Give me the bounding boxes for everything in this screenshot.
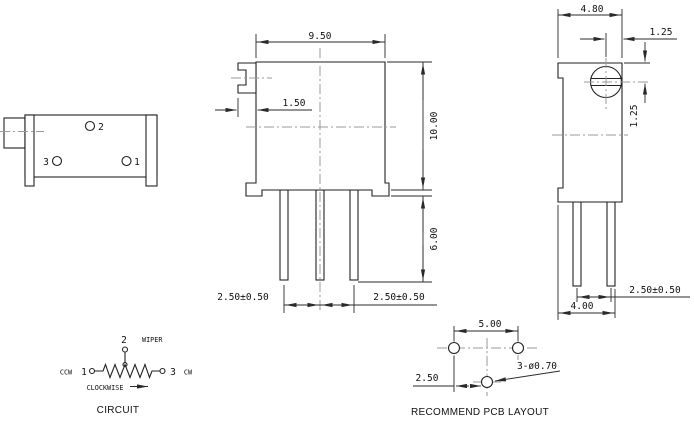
circuit-pin3-label: 3 bbox=[170, 367, 176, 378]
front-pin-left bbox=[280, 190, 288, 280]
svg-text:2.50±0.50: 2.50±0.50 bbox=[217, 292, 269, 303]
profile-pin-left bbox=[573, 202, 581, 286]
circuit-schematic: 2 WIPER CCW 1 3 CW CLOCKWISE CIRCUIT bbox=[60, 335, 193, 416]
circuit-pin1-label: 1 bbox=[81, 367, 87, 378]
circuit-terminal-2 bbox=[123, 347, 128, 352]
dim-screw-offset-v: 1.25 bbox=[624, 42, 650, 127]
drawing-canvas: 2 3 1 9.50 1.50 bbox=[0, 0, 694, 429]
dim-front-pin-pitch: 2.50±0.50 2.50±0.50 bbox=[217, 285, 437, 313]
circuit-caption: CIRCUIT bbox=[97, 405, 140, 416]
pcb-hole-spec-leader: 3-ø0.70 bbox=[495, 361, 560, 381]
dim-pcb-hole-pitch: 5.00 bbox=[454, 319, 518, 341]
side-pin3-label: 3 bbox=[43, 157, 49, 168]
dim-profile-pin-pitch: 2.50±0.50 bbox=[577, 285, 690, 302]
dim-front-pin-length: 6.00 bbox=[358, 196, 440, 282]
front-pin-right bbox=[350, 190, 358, 280]
circuit-terminal-1 bbox=[90, 369, 95, 374]
pcb-hole-3 bbox=[513, 343, 524, 354]
pcb-layout: 5.00 2.50 3-ø0.70 RECOMMEND PCB LAYOUT bbox=[411, 319, 560, 418]
circuit-ccw-label: CCW bbox=[60, 369, 73, 377]
side-hole-1 bbox=[122, 157, 131, 166]
side-pin2-label: 2 bbox=[98, 122, 104, 133]
side-hole-3 bbox=[53, 157, 62, 166]
circuit-resistor bbox=[95, 365, 160, 378]
svg-text:4.80: 4.80 bbox=[581, 4, 604, 15]
dim-front-height: 10.00 bbox=[387, 62, 440, 190]
svg-text:3-ø0.70: 3-ø0.70 bbox=[517, 361, 557, 372]
svg-text:6.00: 6.00 bbox=[429, 227, 440, 250]
svg-text:4.00: 4.00 bbox=[571, 301, 594, 312]
circuit-cw-label: CW bbox=[184, 369, 193, 377]
side-left-flange bbox=[25, 115, 34, 186]
front-body bbox=[246, 62, 389, 196]
svg-text:1.50: 1.50 bbox=[283, 98, 306, 109]
svg-text:9.50: 9.50 bbox=[309, 31, 332, 42]
circuit-direction-label: CLOCKWISE bbox=[87, 384, 124, 392]
side-right-flange bbox=[146, 115, 157, 186]
svg-text:2.50±0.50: 2.50±0.50 bbox=[373, 292, 425, 303]
side-pin1-label: 1 bbox=[134, 157, 140, 168]
dim-screw-offset-h: 1.25 bbox=[580, 27, 677, 57]
svg-text:2.50±0.50: 2.50±0.50 bbox=[629, 285, 681, 296]
pcb-hole-1 bbox=[449, 343, 460, 354]
side-face-view: 2 3 1 bbox=[0, 115, 157, 186]
svg-text:1.25: 1.25 bbox=[629, 105, 640, 128]
pcb-hole-2 bbox=[482, 377, 493, 388]
circuit-pin2-label: 2 bbox=[121, 335, 127, 346]
dim-profile-depth: 4.80 bbox=[558, 4, 622, 58]
datasheet-dimension-drawing: 2 3 1 9.50 1.50 bbox=[0, 0, 694, 429]
front-view: 9.50 1.50 10.00 6.00 bbox=[215, 31, 440, 313]
circuit-terminal-3 bbox=[160, 369, 165, 374]
svg-text:10.00: 10.00 bbox=[429, 111, 440, 140]
svg-text:1.25: 1.25 bbox=[650, 27, 673, 38]
pcb-caption: RECOMMEND PCB LAYOUT bbox=[411, 407, 549, 418]
profile-view: 4.80 1.25 1.25 2.50±0.50 bbox=[552, 4, 690, 320]
svg-text:2.50: 2.50 bbox=[416, 373, 439, 384]
side-hole-2 bbox=[86, 122, 95, 131]
svg-text:5.00: 5.00 bbox=[479, 319, 502, 330]
circuit-wiper-label: WIPER bbox=[142, 336, 163, 344]
profile-pin-right bbox=[607, 202, 615, 286]
side-shaft bbox=[4, 118, 25, 148]
dim-pcb-hole-offset: 2.50 bbox=[413, 356, 481, 392]
